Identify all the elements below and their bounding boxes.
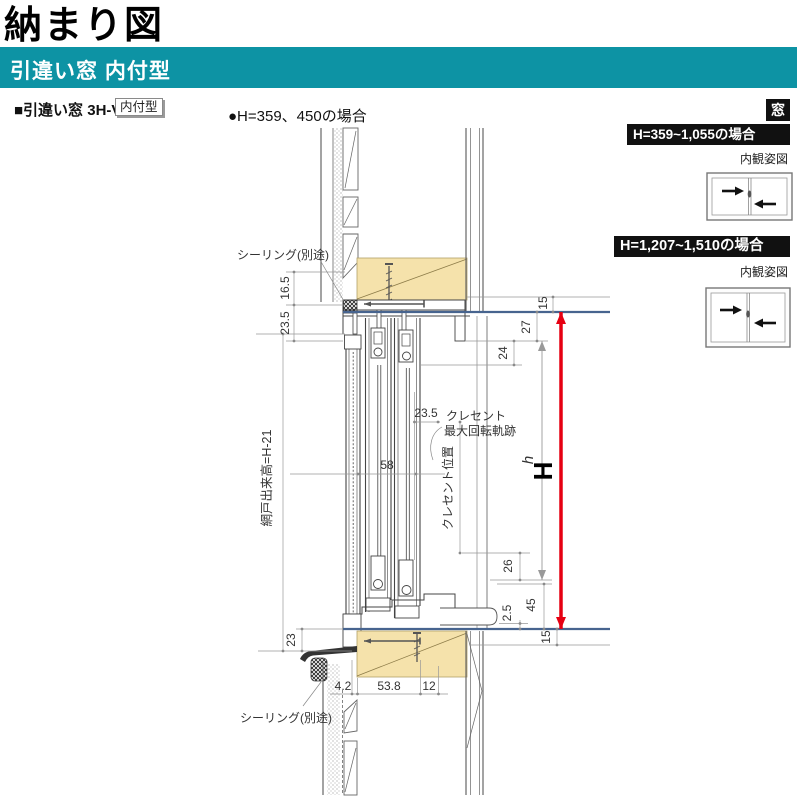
sealing-top-label: シーリング(別途) [237,247,329,262]
dim-45: 45 [524,598,538,612]
dim-24: 24 [496,346,510,360]
dim-27: 27 [519,320,533,334]
crescent-label-line1: クレセント [446,409,506,423]
dim-23: 23 [284,633,298,647]
dim-58: 58 [380,458,394,472]
right-wall-upper [466,128,483,312]
crescent-lock-icon [746,311,750,318]
dim-2-5: 2.5 [500,604,514,621]
installation-detail-drawing: シーリング(別途) シーリング(別途) 16.5 23.5 23 網戸出来高=H… [0,0,800,800]
dim-23-5-mid: 23.5 [414,406,438,420]
interior-sill-board [440,608,497,625]
bottom-wood-blocking [357,631,467,677]
h-dimension-line [538,341,546,580]
crescent-position-label: クレセント位置 [440,446,455,530]
flashing [300,646,357,662]
left-wall-upper [321,128,358,302]
dim-53-8: 53.8 [377,679,401,693]
inner-sash-section [395,318,421,618]
dim-23-5-left: 23.5 [278,311,292,335]
screen-sash-section [345,335,362,648]
crescent-label-line2: 最大回転軌跡 [444,423,516,438]
dim-15-bottom: 15 [539,630,553,644]
dim-4-2: 4.2 [335,679,352,693]
bottom-beam-fill [357,631,467,677]
sealing-bottom-label: シーリング(別途) [240,710,332,725]
right-reveal-lines [477,316,487,629]
crescent-lock-icon [748,191,752,198]
dim-15-top: 15 [536,296,550,310]
catalog-page: 納まり図 引違い窓 内付型 ■引違い窓 3H-V 内付型 ●H=359、450の… [0,0,800,800]
right-wall-lower [466,631,483,795]
interior-view-window-short [707,173,792,220]
interior-view-window-tall [706,288,790,347]
screen-height-label: 網戸出来高=H-21 [259,430,274,527]
bottom-sealing-bead [311,658,327,681]
dim-16-5: 16.5 [278,276,292,300]
dim-12: 12 [422,679,436,693]
dim-26: 26 [501,559,515,573]
dim-h-big: H [528,462,558,481]
